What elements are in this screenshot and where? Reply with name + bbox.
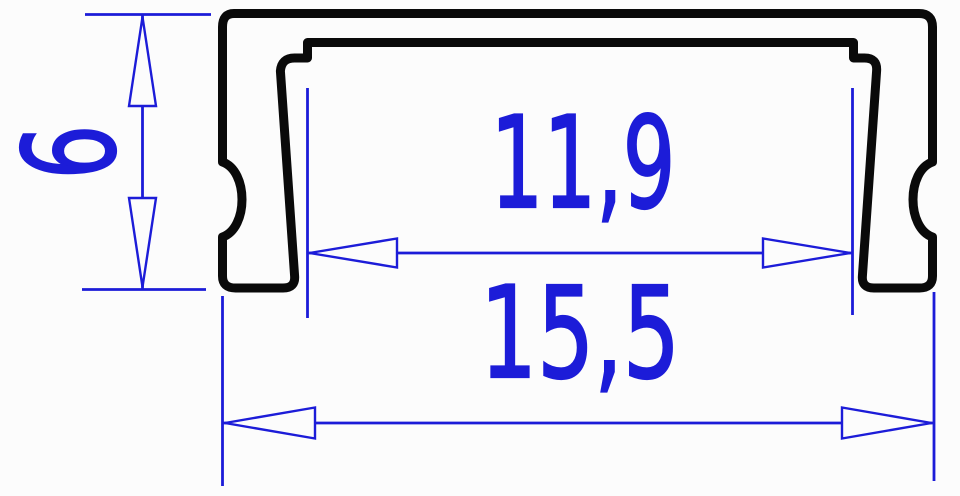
height-dimension-label: 6 [0,125,144,180]
technical-drawing-canvas: 6 11,9 15,5 [0,0,960,496]
inner-width-dimension-label: 11,9 [491,89,676,237]
arrow-left-icon [225,408,315,439]
profile-dimension-drawing: 6 11,9 15,5 [0,0,960,496]
height-dimension: 6 [0,15,211,290]
arrow-right-icon [763,239,851,268]
outer-width-dimension: 15,5 [223,259,935,486]
arrow-left-icon [310,239,398,268]
outer-width-dimension-label: 15,5 [480,259,680,407]
arrow-down-icon [129,198,156,287]
arrow-right-icon [842,408,932,439]
arrow-up-icon [129,17,156,106]
